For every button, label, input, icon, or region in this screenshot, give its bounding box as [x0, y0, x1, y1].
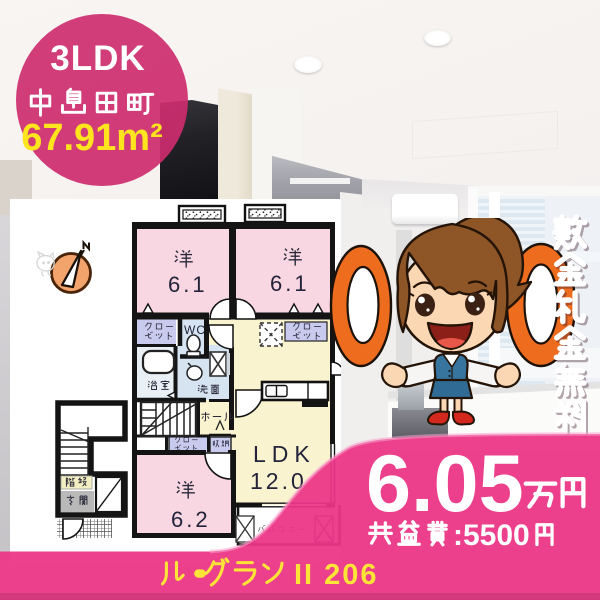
svg-text:6.1: 6.1 [168, 272, 208, 297]
svg-text:WC: WC [184, 323, 206, 337]
svg-text:6.1: 6.1 [270, 271, 310, 296]
svg-text::5500: :5500 [453, 519, 530, 552]
svg-text:II 206: II 206 [294, 559, 379, 591]
